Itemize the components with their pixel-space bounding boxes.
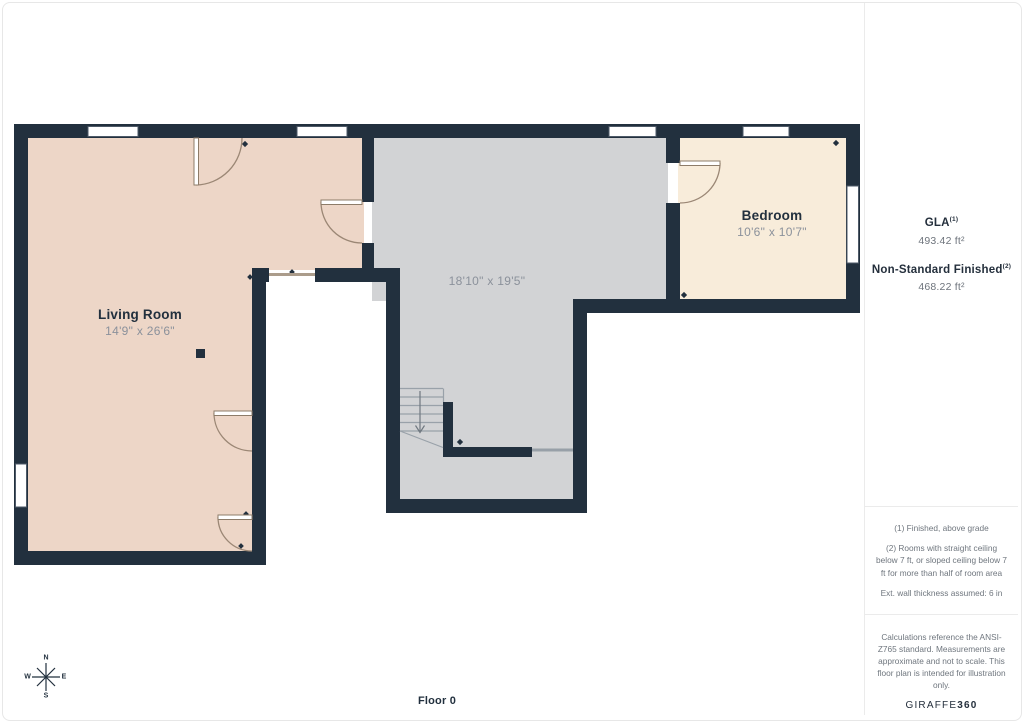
area-summary-section: GLA(1) 493.42 ft² Non-Standard Finished(… <box>865 3 1018 506</box>
compass-rose <box>32 663 60 691</box>
window <box>88 127 138 137</box>
room-dimensions: 14'9" x 26'6" <box>40 323 240 340</box>
non-standard-finished-value: 468.22 ft² <box>918 281 964 293</box>
wall-opening <box>269 273 315 276</box>
column <box>196 349 205 358</box>
wall <box>252 268 266 565</box>
living-room-label: Living Room 14'9" x 26'6" <box>40 306 240 340</box>
compass-north-label: N <box>43 655 48 662</box>
door-leaf <box>214 411 252 416</box>
room-name: Living Room <box>40 306 240 323</box>
non-standard-finished-label: Non-Standard Finished(2) <box>872 263 1011 276</box>
disclaimer-section: Calculations reference the ANSI-Z765 sta… <box>865 614 1018 715</box>
footnote: Ext. wall thickness assumed: 6 in <box>875 587 1008 599</box>
giraffe360-logo: GIRAFFE360 <box>874 700 1009 711</box>
door-leaf <box>194 138 199 185</box>
door-leaf <box>680 161 720 166</box>
nsf-footnote-ref: (2) <box>1003 263 1012 270</box>
stair-wall <box>443 447 532 457</box>
compass-east-label: E <box>62 674 67 681</box>
room-dimensions: 10'6" x 10'7" <box>692 224 852 241</box>
room-dimensions: 18'10" x 19'5" <box>407 273 567 290</box>
compass-south-label: S <box>44 693 49 700</box>
door-leaf <box>218 515 252 520</box>
wall <box>386 499 587 513</box>
gla-footnote-ref: (1) <box>950 216 959 223</box>
floor-title: Floor 0 <box>337 695 537 707</box>
measurements-sidebar: GLA(1) 493.42 ft² Non-Standard Finished(… <box>864 3 1018 715</box>
window <box>297 127 347 137</box>
footnote: (1) Finished, above grade <box>875 522 1008 534</box>
brand-suffix: 360 <box>957 700 977 711</box>
floor-plan-page: Living Room 14'9" x 26'6" 18'10" x 19'5"… <box>0 0 1024 723</box>
wall-opening <box>532 449 573 452</box>
main-area-floor <box>398 268 575 501</box>
wall <box>14 551 266 565</box>
compass-west-label: W <box>24 674 31 681</box>
wall <box>252 268 269 282</box>
bedroom-label: Bedroom 10'6" x 10'7" <box>692 207 852 241</box>
window <box>743 127 789 137</box>
wall <box>666 203 680 301</box>
brand-name: GIRAFFE <box>905 700 957 711</box>
footnotes-section: (1) Finished, above grade (2) Rooms with… <box>865 506 1018 614</box>
door-leaf <box>321 200 362 205</box>
disclaimer-text: Calculations reference the ANSI-Z765 sta… <box>874 631 1009 691</box>
wall <box>573 299 587 513</box>
wall-edge-line <box>194 124 242 127</box>
wall <box>14 124 860 138</box>
nsf-label-text: Non-Standard Finished <box>872 263 1003 275</box>
window <box>609 127 656 137</box>
room-name: Bedroom <box>692 207 852 224</box>
gla-label-text: GLA <box>925 217 950 229</box>
wall <box>362 243 374 270</box>
main-area-label: 18'10" x 19'5" <box>407 273 567 290</box>
living-room-floor <box>28 138 254 553</box>
wall <box>362 138 374 202</box>
gla-value: 493.42 ft² <box>918 235 964 247</box>
footnote: (2) Rooms with straight ceiling below 7 … <box>875 542 1008 578</box>
wall <box>666 138 680 163</box>
window <box>16 464 27 507</box>
wall <box>573 299 860 313</box>
gla-label: GLA(1) <box>925 216 958 229</box>
wall <box>386 268 400 513</box>
